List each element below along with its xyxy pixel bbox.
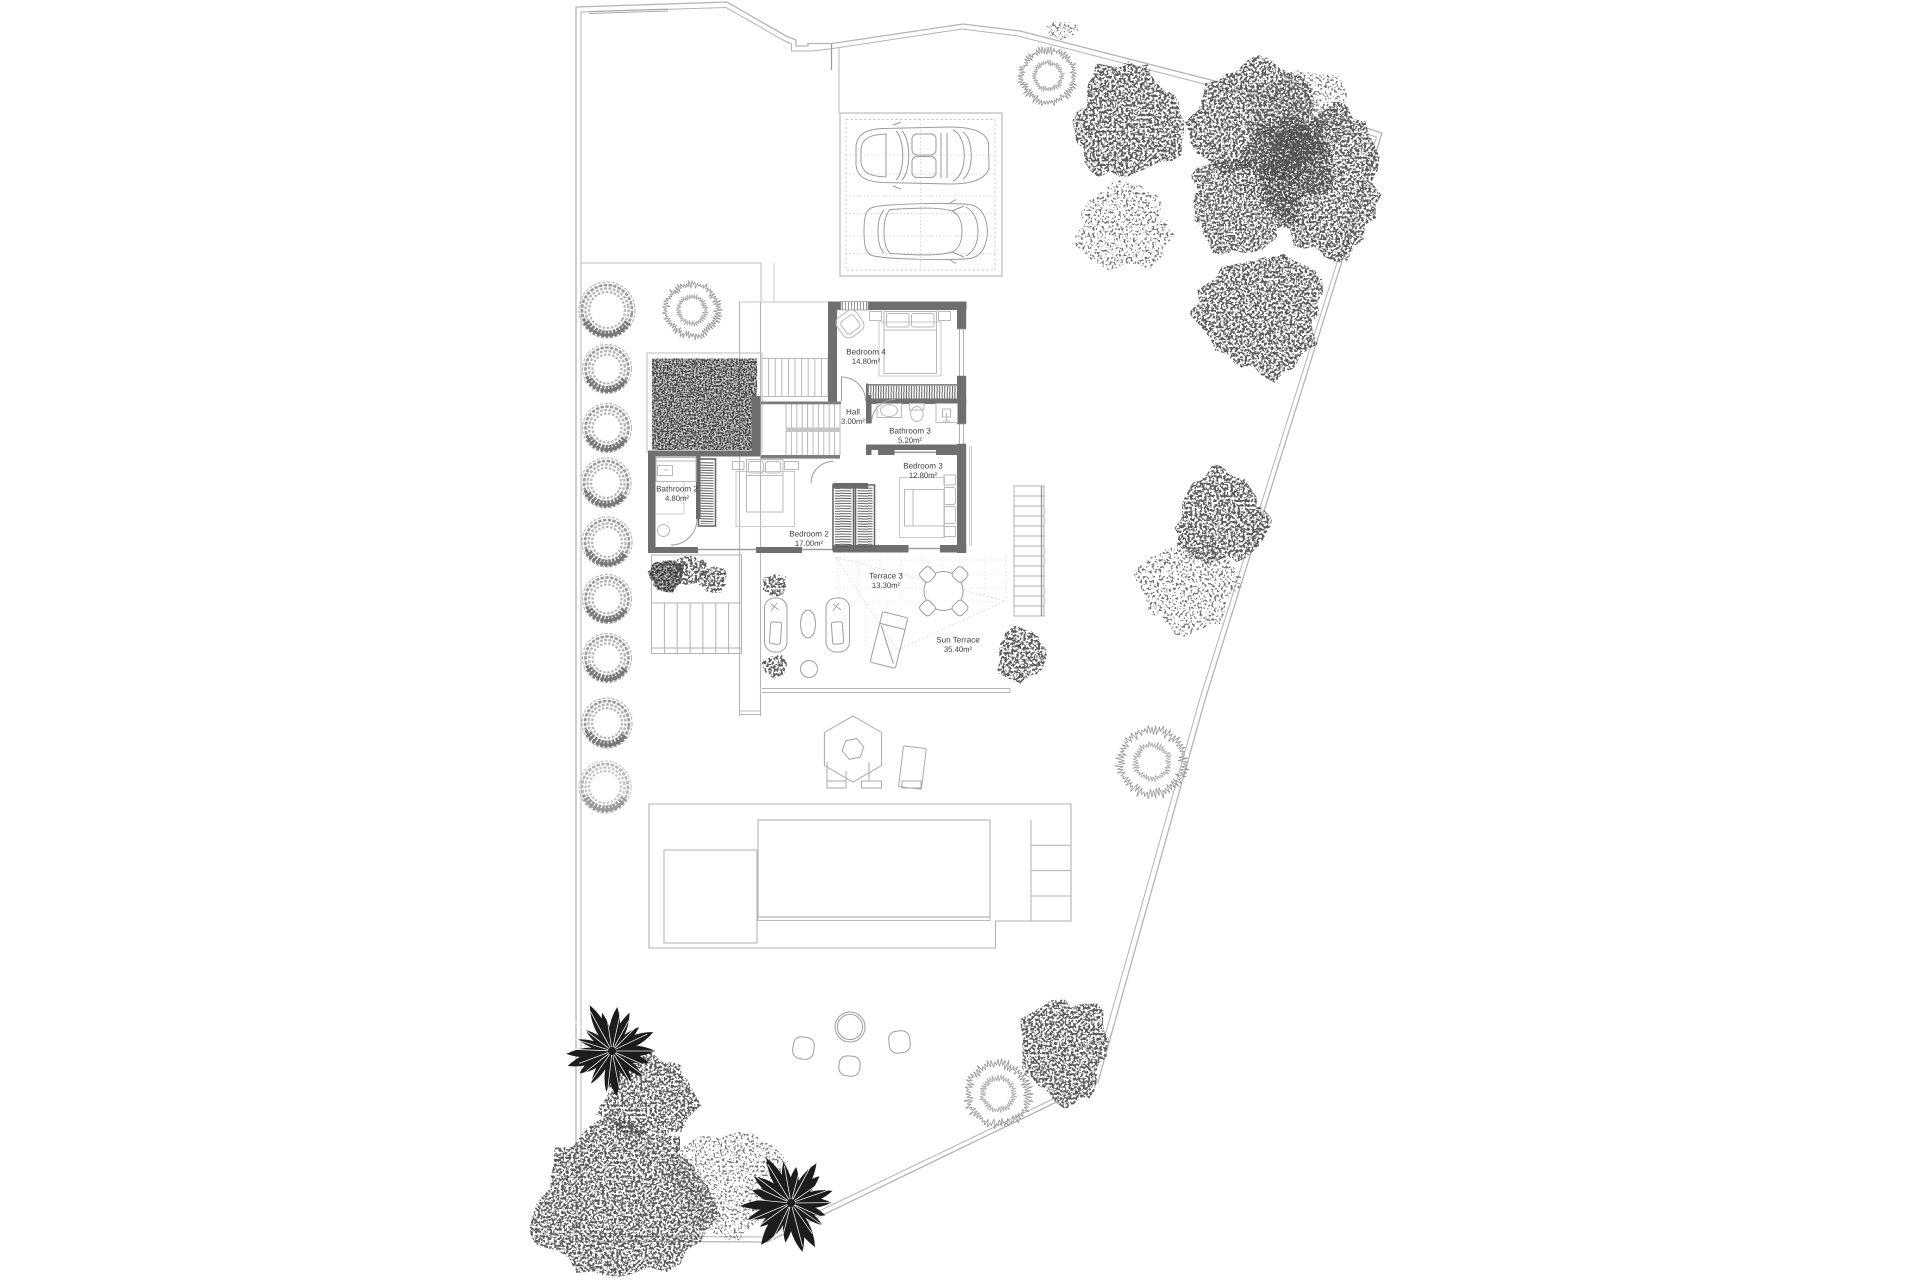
svg-text:Bedroom 2: Bedroom 2 [789,529,829,538]
svg-text:35.40m²: 35.40m² [944,645,973,654]
svg-text:Hall: Hall [846,407,860,416]
svg-text:4.80m²: 4.80m² [665,494,689,503]
svg-text:17.00m²: 17.00m² [795,539,824,548]
svg-text:Sun Terrace: Sun Terrace [936,635,980,644]
svg-text:14.80m²: 14.80m² [852,357,881,366]
svg-text:3.00m²: 3.00m² [841,417,865,426]
svg-text:5.20m²: 5.20m² [898,436,922,445]
svg-text:Bedroom 4: Bedroom 4 [846,347,886,356]
svg-text:Terrace 3: Terrace 3 [869,571,903,580]
svg-text:Bathroom 2: Bathroom 2 [656,484,698,493]
svg-text:Bathroom 3: Bathroom 3 [889,426,931,435]
svg-text:13.30m²: 13.30m² [872,581,901,590]
svg-text:Bedroom 3: Bedroom 3 [903,461,943,470]
svg-text:12.80m²: 12.80m² [909,471,938,480]
